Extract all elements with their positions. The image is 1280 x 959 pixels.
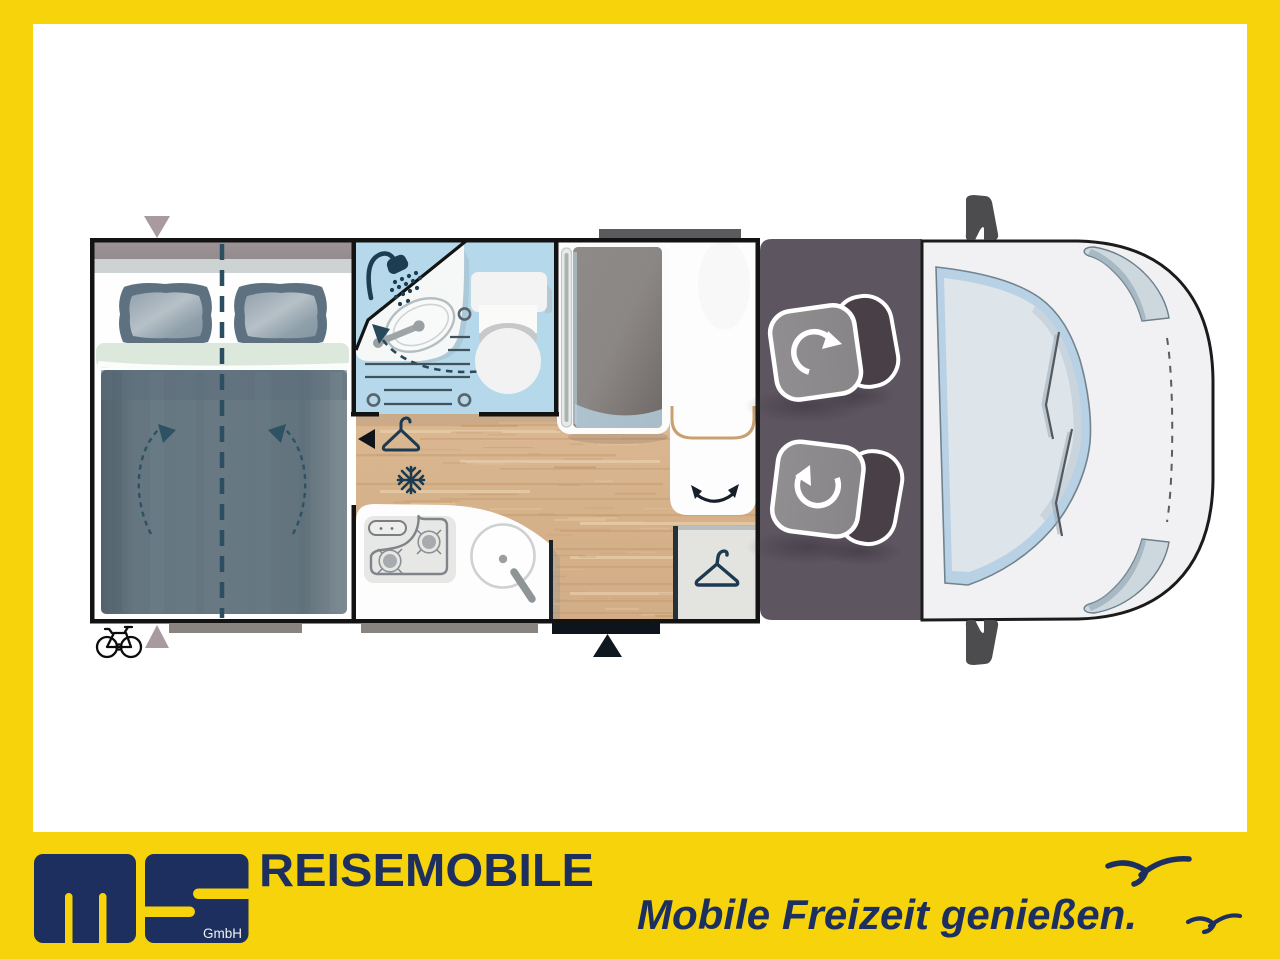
svg-text:GmbH: GmbH <box>203 926 242 941</box>
svg-text:Mobile Freizeit genießen.: Mobile Freizeit genießen. <box>637 891 1137 938</box>
svg-text:REISEMOBILE: REISEMOBILE <box>259 844 594 896</box>
